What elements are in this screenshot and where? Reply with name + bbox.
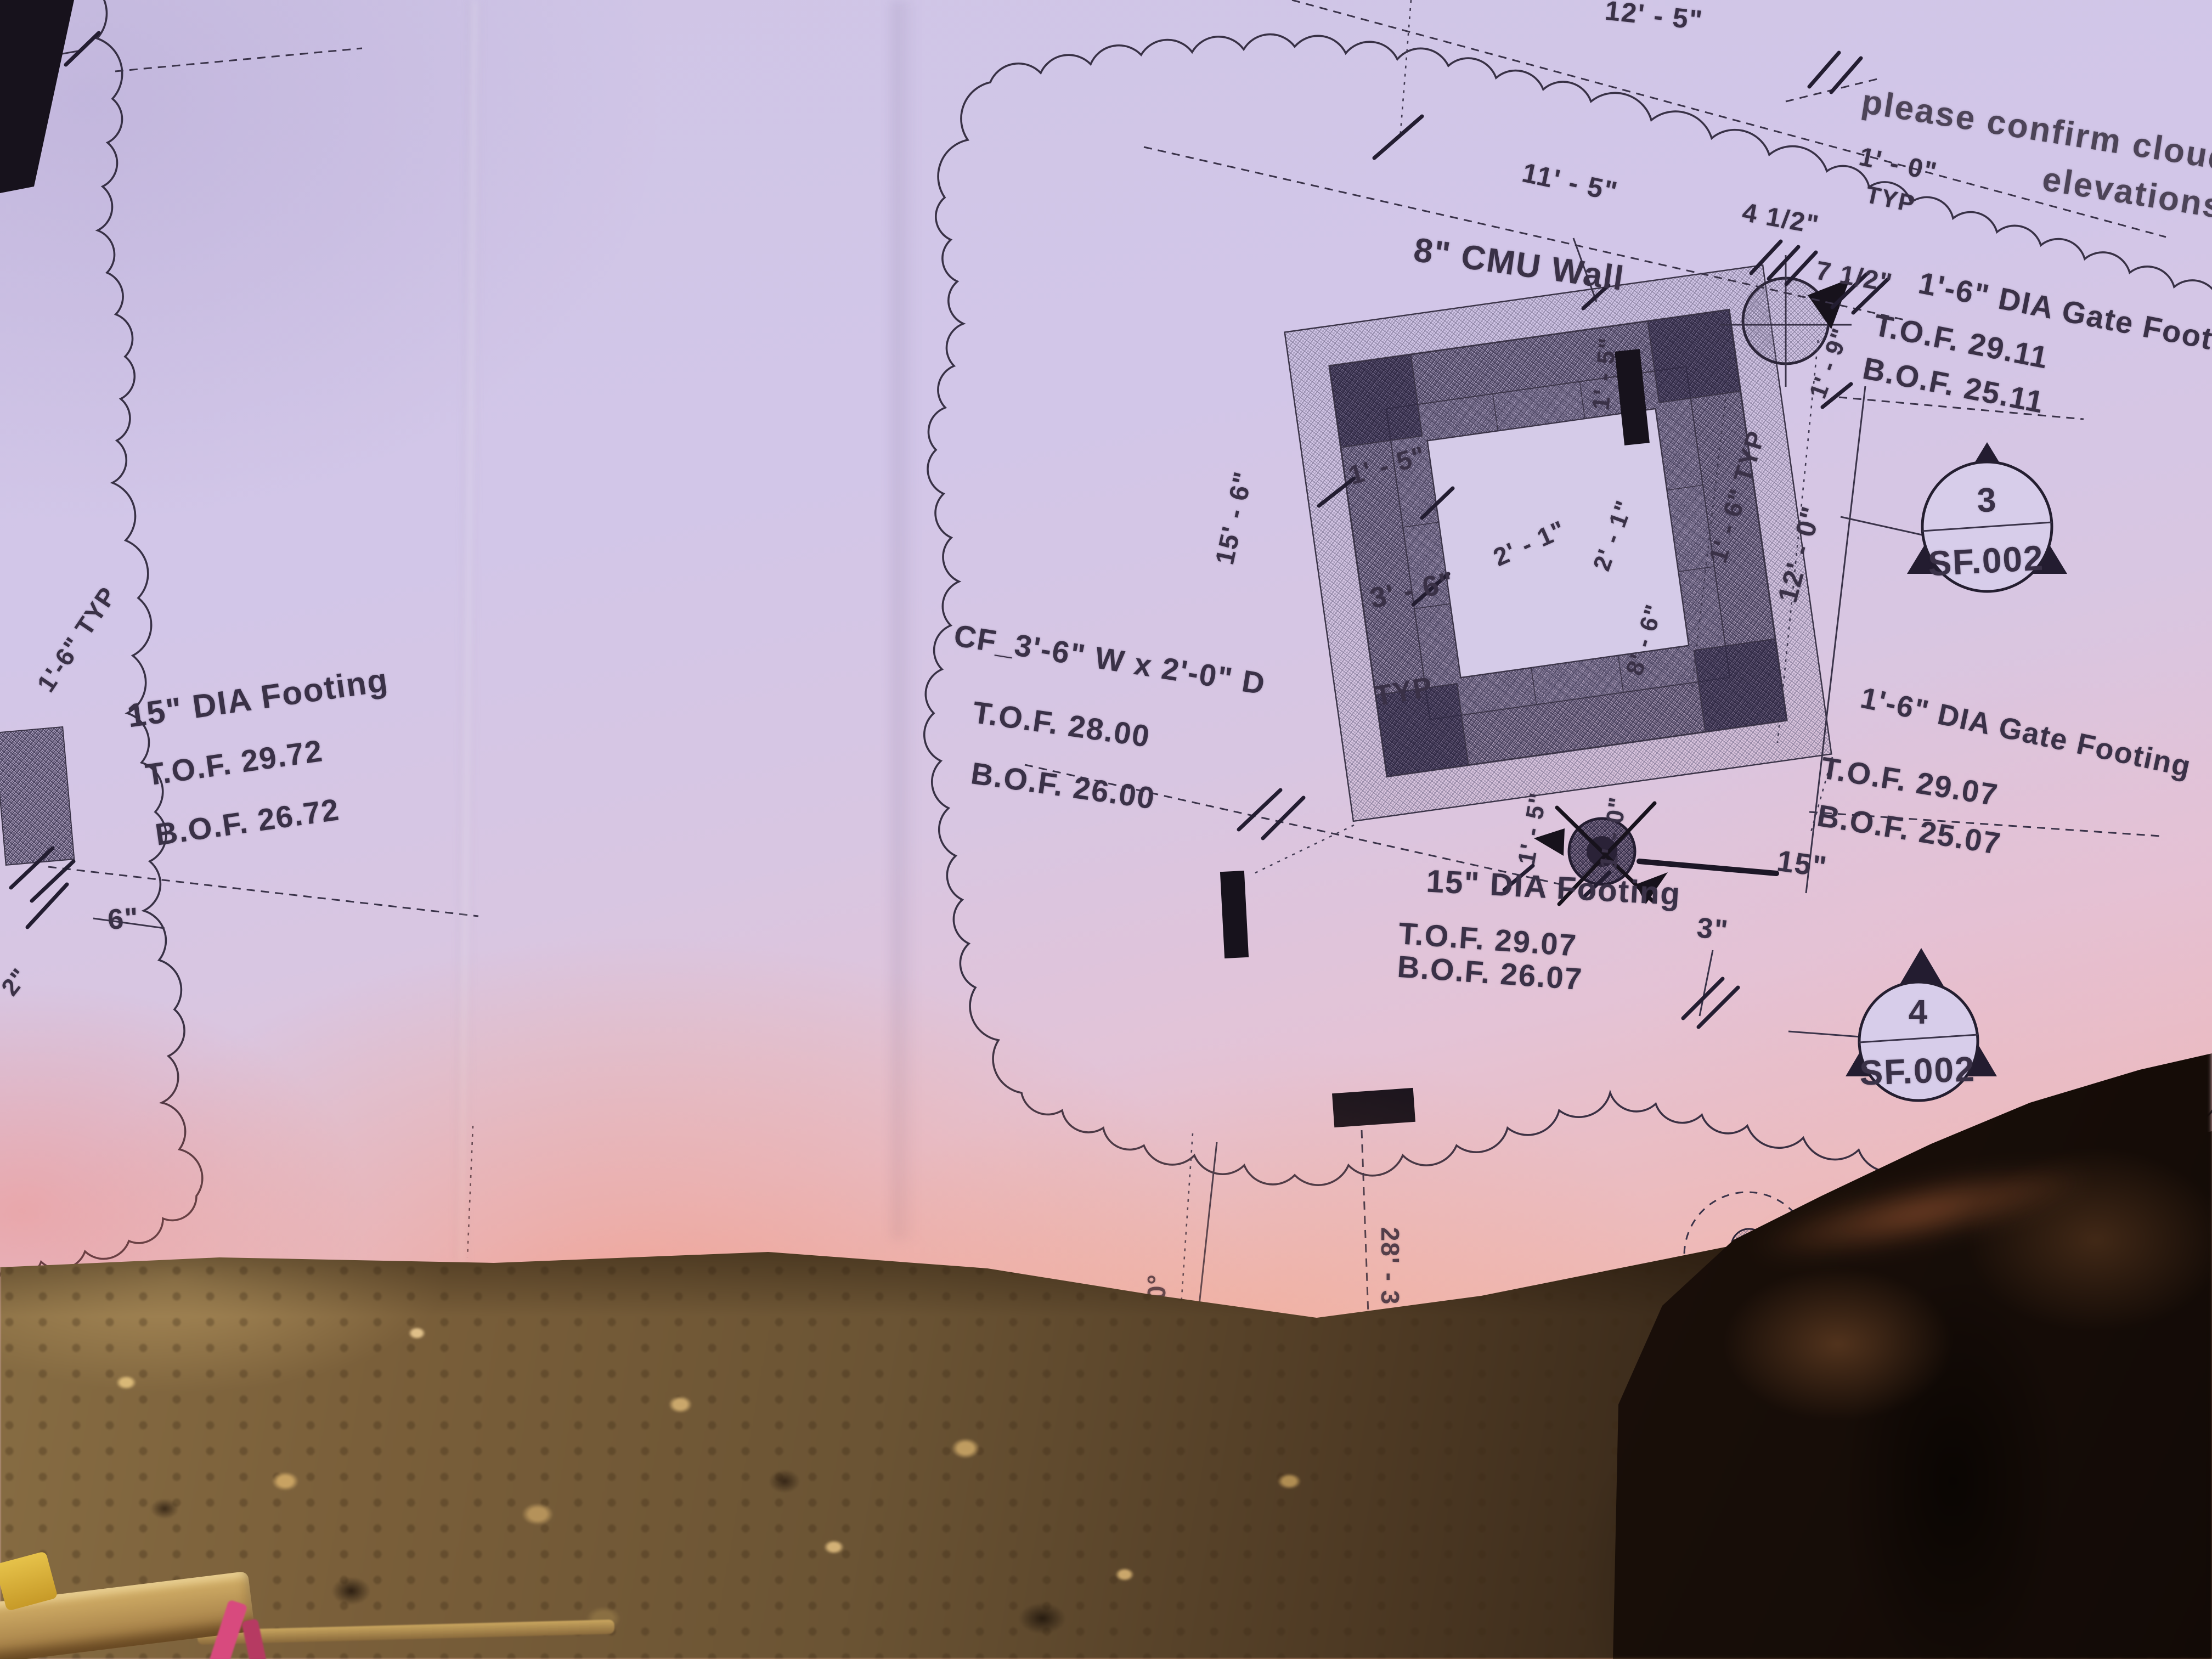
left-footing-block	[0, 727, 74, 865]
revision-cloud-left	[0, 0, 202, 1288]
leader-15in	[1639, 861, 1776, 873]
dim-tick	[1683, 979, 1738, 1027]
ext-line	[115, 48, 362, 71]
corner-pilaster	[1329, 354, 1422, 447]
leader-3in	[1700, 950, 1713, 1016]
marker4-number: 4	[1909, 993, 1928, 1032]
corner-pilaster	[1647, 309, 1740, 402]
ext-line	[1362, 1130, 1368, 1314]
marker4-sheet: SF.002	[1859, 1048, 1976, 1093]
paper-crease	[891, 0, 917, 1240]
marker3-leader	[1841, 517, 1925, 535]
site-photo-of-blueprint: 15" DIA Footing T.O.F. 29.72 B.O.F. 26.7…	[0, 0, 2212, 1659]
black-mark-bar	[1332, 1088, 1415, 1127]
marker3-number: 3	[1977, 481, 1998, 520]
dim-tick	[27, 884, 67, 927]
ext-line	[1400, 0, 1411, 138]
black-mark-bar	[1220, 871, 1249, 958]
marker4-leader	[1788, 1031, 1861, 1037]
dim-tick	[66, 33, 99, 65]
dim-28-3: 28' - 3	[1375, 1227, 1405, 1306]
dim-tick	[1374, 116, 1422, 158]
dim-3in: 3"	[1695, 911, 1730, 947]
corner-pilaster	[1694, 639, 1787, 732]
dim-6in: 6"	[106, 901, 140, 936]
dim-15in: 15"	[1775, 844, 1829, 884]
black-mark-corner	[0, 0, 74, 193]
dim-tick	[1809, 53, 1861, 92]
marker3-sheet: SF.002	[1927, 538, 2045, 584]
